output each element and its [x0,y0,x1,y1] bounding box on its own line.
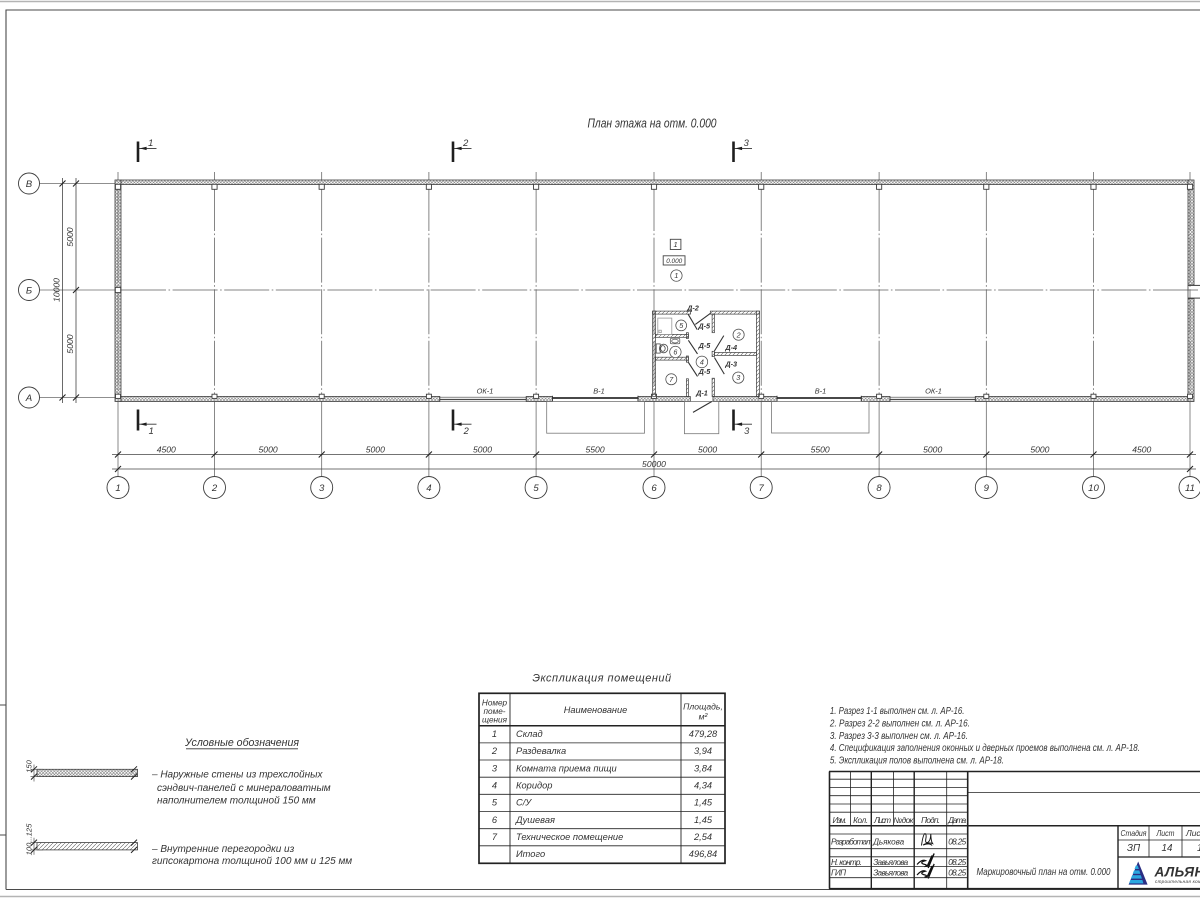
svg-text:2: 2 [463,426,470,436]
svg-text:4: 4 [492,781,497,791]
svg-text:Площадь,: Площадь, [683,702,723,712]
svg-text:3: 3 [744,426,750,436]
svg-text:Дата: Дата [947,816,966,825]
svg-text:150: 150 [25,759,34,772]
svg-text:щения: щения [482,716,508,725]
svg-text:План этажа на отм. 0.000: План этажа на отм. 0.000 [588,117,717,131]
svg-text:м²: м² [699,712,709,722]
svg-text:ОК-1: ОК-1 [477,387,494,396]
svg-text:5000: 5000 [259,445,278,455]
svg-text:6: 6 [492,815,498,825]
svg-text:Итого: Итого [516,849,545,859]
svg-text:Завьялова: Завьялова [873,858,908,867]
svg-text:3,84: 3,84 [694,763,712,773]
svg-text:Коридор: Коридор [516,781,552,791]
svg-text:11: 11 [1185,483,1195,494]
svg-text:Д-5: Д-5 [698,367,712,376]
svg-text:ЗП: ЗП [1127,843,1141,854]
svg-text:ГИП: ГИП [831,868,846,877]
svg-text:2: 2 [462,138,469,148]
svg-text:Д-4: Д-4 [724,343,737,352]
svg-text:5000: 5000 [473,445,492,455]
svg-text:сэндвич-панелей с минераловатн: сэндвич-панелей с минераловатным [157,783,331,794]
svg-text:2: 2 [491,746,498,756]
svg-text:Д-3: Д-3 [724,360,737,369]
svg-text:В: В [26,179,33,190]
svg-text:– Наружные стены из трехслойны: – Наружные стены из трехслойных [151,770,323,781]
svg-text:2. Разрез 2-2 выполнен см. л.: 2. Разрез 2-2 выполнен см. л. АР-16. [829,718,970,729]
svg-text:1: 1 [674,240,678,249]
svg-text:4500: 4500 [157,445,176,455]
svg-text:Условные обозначения: Условные обозначения [184,737,299,749]
svg-text:6: 6 [673,348,677,357]
svg-text:Подп.: Подп. [921,816,940,825]
svg-text:14: 14 [1162,843,1173,854]
svg-text:В-1: В-1 [815,387,827,396]
svg-text:10000: 10000 [52,278,62,302]
svg-text:3: 3 [744,138,750,148]
svg-text:1,45: 1,45 [694,815,713,825]
svg-text:Комната приема пищи: Комната приема пищи [516,763,617,773]
svg-text:Д-1: Д-1 [695,388,708,397]
svg-text:С/У: С/У [516,798,532,808]
svg-text:ОК-1: ОК-1 [925,387,942,396]
svg-text:0.000: 0.000 [666,258,682,265]
svg-text:2: 2 [736,330,741,339]
svg-text:5000: 5000 [366,445,385,455]
svg-text:1: 1 [148,138,153,148]
svg-text:3: 3 [319,483,325,494]
svg-text:гипсокартона толщиной 100 мм и: гипсокартона толщиной 100 мм и 125 мм [152,856,352,867]
svg-text:9: 9 [984,483,990,494]
svg-text:Техническое помещение: Техническое помещение [516,832,623,842]
svg-text:АЛЬЯНС: АЛЬЯНС [1154,865,1200,880]
svg-text:1: 1 [674,271,678,280]
svg-text:1. Разрез 1-1 выполнен см. л.: 1. Разрез 1-1 выполнен см. л. АР-16. [830,706,965,717]
svg-text:1,45: 1,45 [694,798,713,808]
svg-text:8: 8 [876,483,882,494]
svg-text:08.25: 08.25 [948,868,966,877]
svg-text:Маркировочный план на отм. 0.0: Маркировочный план на отм. 0.000 [977,867,1111,878]
svg-text:08.25: 08.25 [948,838,966,847]
svg-text:Дьякова: Дьякова [872,838,904,847]
svg-text:1: 1 [492,729,497,739]
svg-text:В-1: В-1 [593,387,605,396]
svg-text:Кол.: Кол. [853,816,868,825]
svg-text:Д-2: Д-2 [686,303,699,312]
svg-text:наполнителем толщиной 150 мм: наполнителем толщиной 150 мм [157,795,316,806]
svg-text:100...125: 100...125 [25,823,34,855]
svg-text:5000: 5000 [65,227,75,246]
svg-text:3: 3 [736,373,740,382]
svg-text:5. Экспликация полов выполнена: 5. Экспликация полов выполнена см. л. АР… [830,756,1004,767]
svg-text:6: 6 [651,483,657,494]
svg-text:Разработал: Разработал [831,838,871,847]
svg-text:Д-5: Д-5 [698,341,712,350]
svg-text:2: 2 [211,483,218,494]
svg-text:Экспликация помещений: Экспликация помещений [532,673,671,685]
svg-text:10: 10 [1088,483,1099,494]
svg-text:№док: №док [893,816,914,825]
svg-text:5000: 5000 [923,445,942,455]
svg-text:Завьялова: Завьялова [873,868,908,877]
svg-text:3. Разрез 3-3 выполнен см. л.: 3. Разрез 3-3 выполнен см. л. АР-16. [830,731,968,742]
svg-text:Н. контр.: Н. контр. [831,858,862,867]
svg-text:7: 7 [759,483,765,494]
svg-text:Раздевалка: Раздевалка [516,746,566,756]
svg-text:4: 4 [426,483,431,494]
svg-text:3: 3 [492,763,498,773]
svg-text:4: 4 [700,358,704,367]
svg-text:Изм.: Изм. [833,816,847,825]
svg-text:5000: 5000 [698,445,717,455]
svg-text:Б: Б [26,285,32,296]
svg-text:А: А [25,393,32,404]
svg-text:496,84: 496,84 [689,849,717,859]
svg-text:3,94: 3,94 [694,746,712,756]
svg-text:Стадия: Стадия [1121,828,1147,838]
svg-text:50000: 50000 [642,459,666,469]
svg-text:08.25: 08.25 [948,858,966,867]
svg-text:5: 5 [492,798,498,808]
svg-text:Душевая: Душевая [515,815,555,825]
svg-text:1: 1 [115,483,120,494]
svg-text:4,34: 4,34 [694,781,712,791]
svg-text:Лист: Лист [873,816,891,825]
svg-text:5000: 5000 [1030,445,1049,455]
svg-text:Листов: Листов [1185,828,1200,838]
svg-text:4500: 4500 [1132,445,1151,455]
svg-text:Склад: Склад [516,729,543,739]
svg-text:4. Спецификация заполнения око: 4. Спецификация заполнения оконных и две… [830,743,1140,754]
svg-text:5: 5 [533,483,539,494]
svg-text:7: 7 [492,832,498,842]
svg-text:Д-5: Д-5 [697,321,711,330]
svg-text:2,54: 2,54 [693,832,712,842]
svg-text:5500: 5500 [811,445,830,455]
svg-text:5500: 5500 [585,445,604,455]
svg-text:Лист: Лист [1156,828,1175,838]
svg-text:– Внутренние перегородки из: – Внутренние перегородки из [151,844,295,855]
svg-text:строительная компания: строительная компания [1155,879,1200,884]
svg-text:479,28: 479,28 [689,729,718,739]
svg-text:1: 1 [149,426,154,436]
svg-text:5000: 5000 [65,334,75,353]
svg-text:Наименование: Наименование [564,705,627,715]
